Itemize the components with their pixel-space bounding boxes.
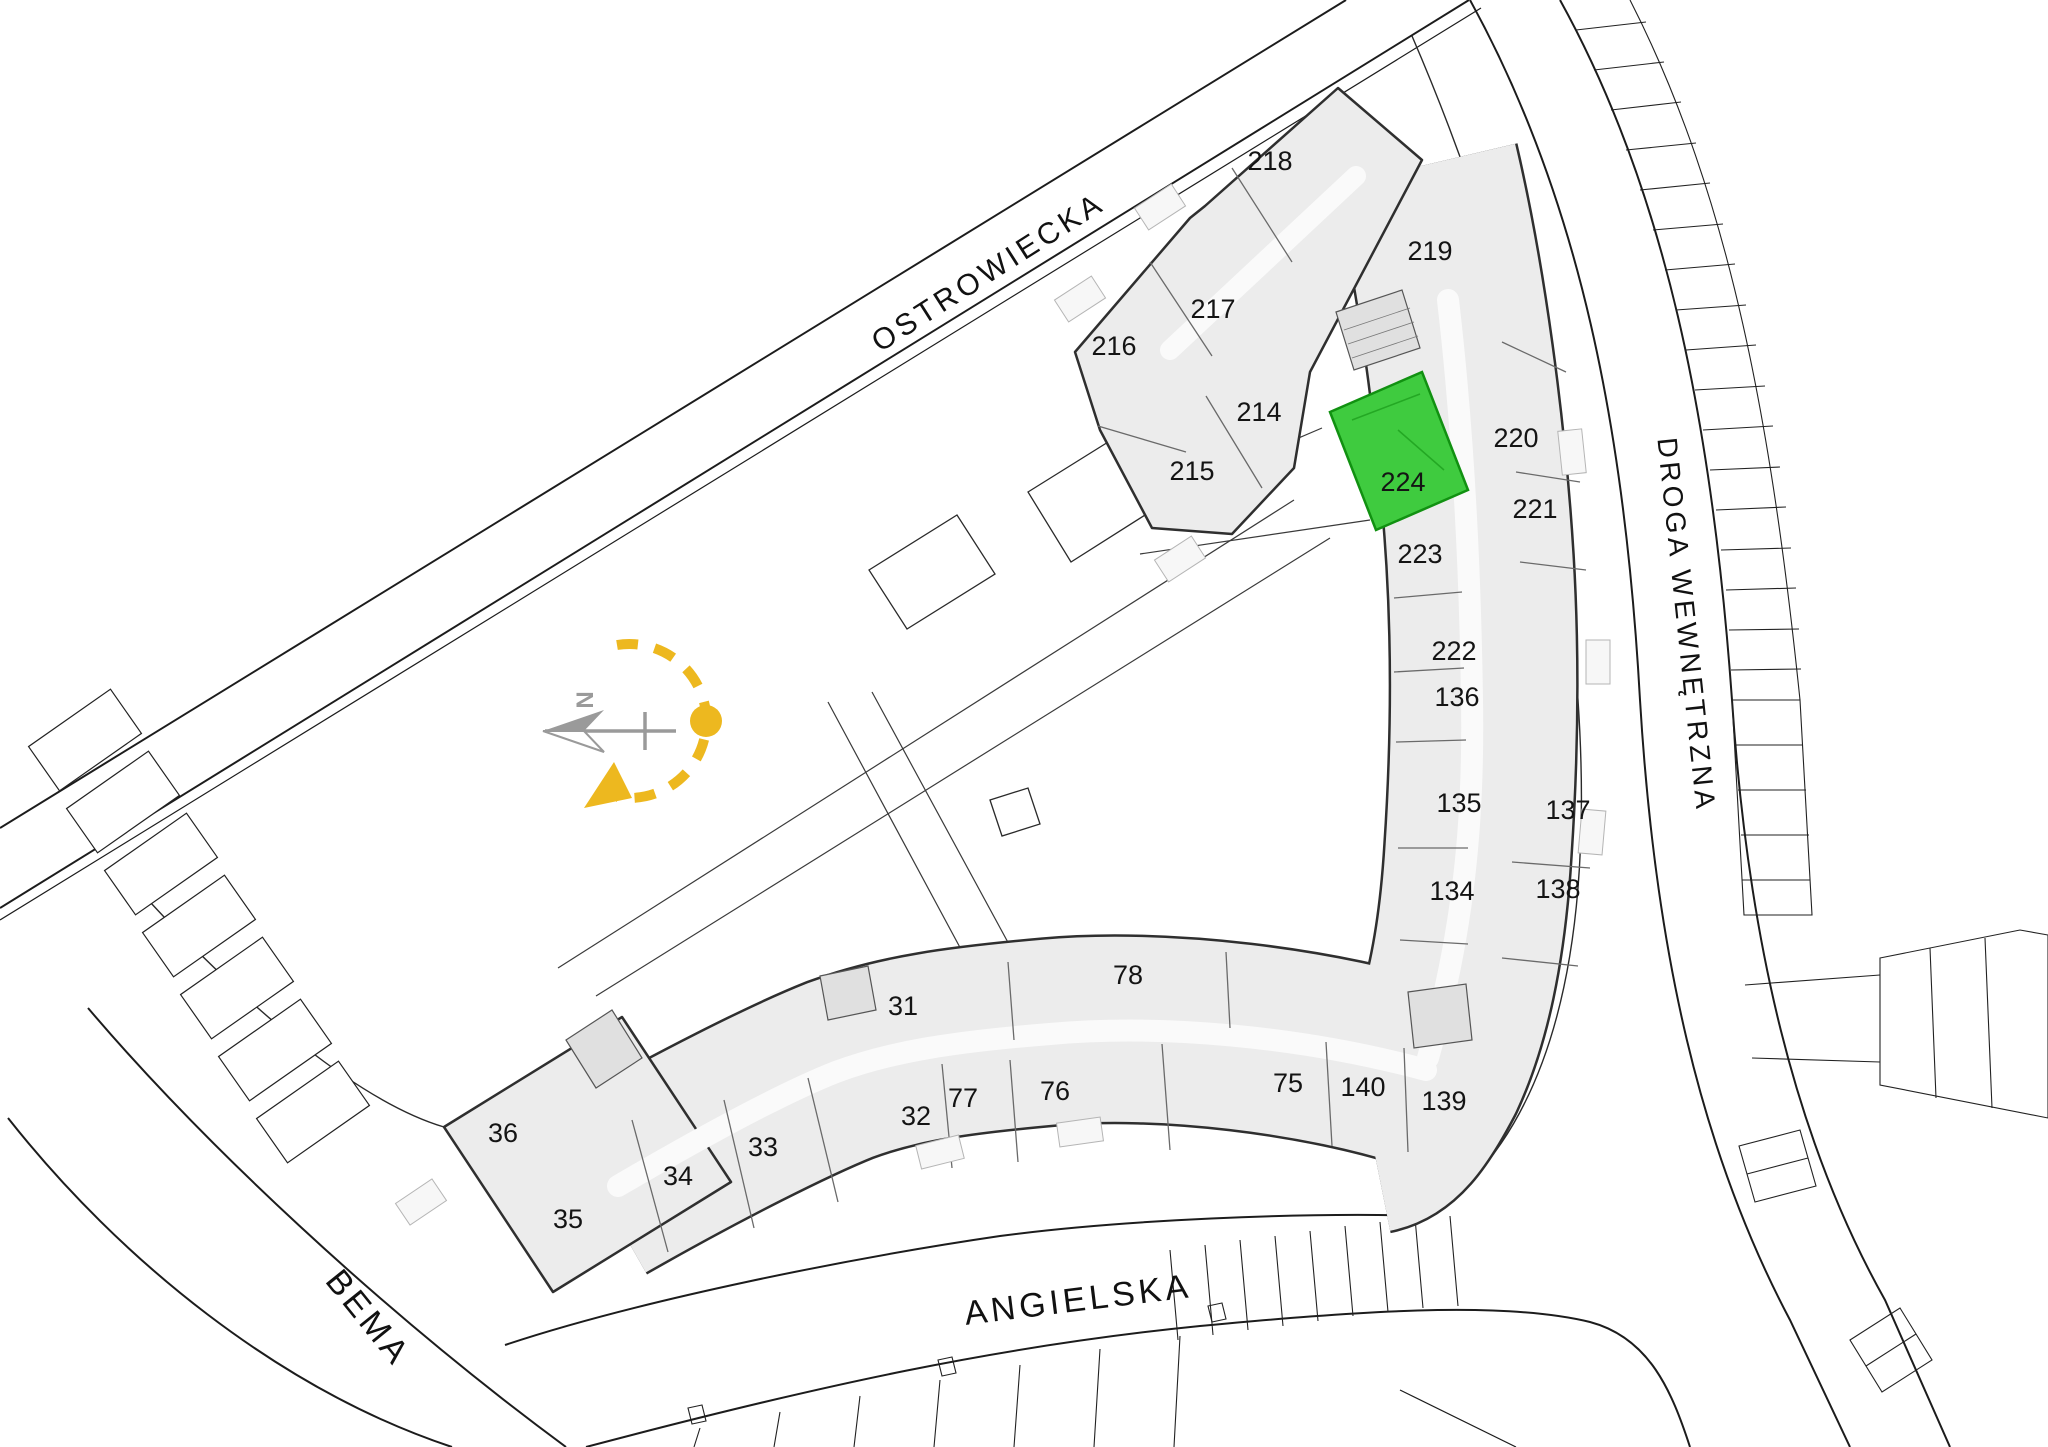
street-angielska-lower-edge xyxy=(586,1310,1690,1447)
unit-label-76[interactable]: 76 xyxy=(1040,1076,1070,1106)
unit-label-218[interactable]: 218 xyxy=(1247,146,1292,176)
east-driveway-stub xyxy=(1745,975,1880,1062)
unit-label-214[interactable]: 214 xyxy=(1236,397,1281,427)
unit-label-221[interactable]: 221 xyxy=(1512,494,1557,524)
street-bema-lower-edge xyxy=(8,1118,452,1447)
driveway-diagonal-south xyxy=(1400,1390,1516,1447)
sun-icon xyxy=(690,705,722,737)
stair-core-2 xyxy=(1408,984,1472,1048)
unit-label-36[interactable]: 36 xyxy=(488,1118,518,1148)
stair-core-4 xyxy=(820,966,876,1020)
droga-parking-column xyxy=(1732,700,1812,915)
walkway-diagonal-edge-2 xyxy=(596,538,1330,996)
site-plan: 218 219 217 216 214 215 220 221 224 223 … xyxy=(0,0,2048,1447)
balcony-9 xyxy=(395,1179,446,1225)
roads xyxy=(0,0,1950,1447)
angielska-parking-row-2 xyxy=(694,1336,1180,1447)
unit-label-136[interactable]: 136 xyxy=(1434,682,1479,712)
yard-shed xyxy=(990,788,1040,836)
unit-label-219[interactable]: 219 xyxy=(1407,236,1452,266)
unit-label-78[interactable]: 78 xyxy=(1113,960,1143,990)
balcony-2 xyxy=(1134,184,1185,230)
unit-label-216[interactable]: 216 xyxy=(1091,331,1136,361)
unit-label-33[interactable]: 33 xyxy=(748,1132,778,1162)
unit-label-134[interactable]: 134 xyxy=(1429,876,1474,906)
unit-label-77[interactable]: 77 xyxy=(948,1083,978,1113)
yard-structures xyxy=(869,434,1164,836)
unit-label-222[interactable]: 222 xyxy=(1431,636,1476,666)
north-arrow-head-filled xyxy=(543,710,604,731)
unit-label-137[interactable]: 137 xyxy=(1545,795,1590,825)
unit-label-138[interactable]: 138 xyxy=(1535,874,1580,904)
yard-structure-1 xyxy=(869,515,995,629)
sun-path-arrowhead-icon xyxy=(584,762,632,808)
compass: N xyxy=(543,644,722,808)
unit-label-224[interactable]: 224 xyxy=(1380,467,1425,497)
unit-label-220[interactable]: 220 xyxy=(1493,423,1538,453)
unit-label-31[interactable]: 31 xyxy=(888,991,918,1021)
unit-label-34[interactable]: 34 xyxy=(663,1161,693,1191)
bema-parking-herringbone xyxy=(29,689,370,1163)
east-parking-box-1 xyxy=(1739,1130,1816,1202)
street-droga-outer-edge xyxy=(1560,0,1950,1447)
unit-label-135[interactable]: 135 xyxy=(1436,788,1481,818)
north-label: N xyxy=(572,691,599,708)
unit-label-217[interactable]: 217 xyxy=(1190,294,1235,324)
parking xyxy=(29,0,2048,1447)
balcony-4 xyxy=(1558,429,1586,475)
unit-label-215[interactable]: 215 xyxy=(1169,456,1214,486)
balcony-5 xyxy=(1586,640,1610,684)
angielska-parking-markers xyxy=(688,1303,1226,1424)
balcony-1 xyxy=(1054,276,1105,322)
unit-label-223[interactable]: 223 xyxy=(1397,539,1442,569)
unit-label-35[interactable]: 35 xyxy=(553,1204,583,1234)
unit-label-139[interactable]: 139 xyxy=(1421,1086,1466,1116)
unit-label-75[interactable]: 75 xyxy=(1273,1068,1303,1098)
balcony-3 xyxy=(1154,536,1205,582)
north-arrow-head-outline xyxy=(543,731,604,752)
east-parking-group xyxy=(1880,930,2048,1118)
unit-label-140[interactable]: 140 xyxy=(1340,1072,1385,1102)
site-plan-svg: 218 219 217 216 214 215 220 221 224 223 … xyxy=(0,0,2048,1447)
north-arrow-icon: N xyxy=(543,691,676,752)
street-label-angielska: ANGIELSKA xyxy=(962,1267,1194,1333)
unit-label-32[interactable]: 32 xyxy=(901,1101,931,1131)
